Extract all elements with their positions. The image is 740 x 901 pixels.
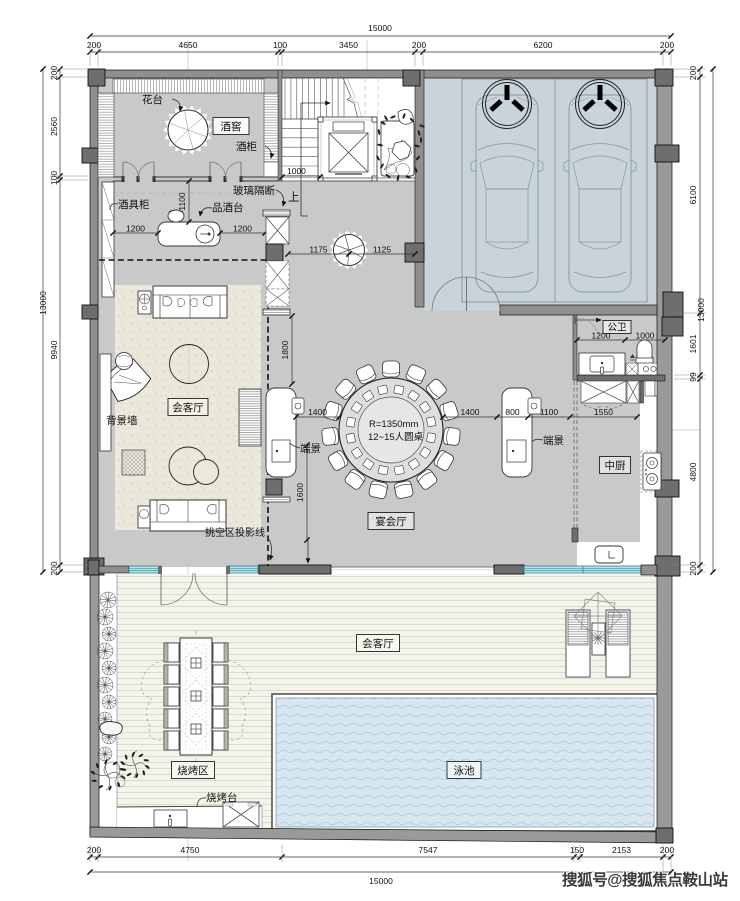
svg-text:200: 200 bbox=[660, 40, 674, 50]
svg-text:15000: 15000 bbox=[369, 876, 393, 886]
svg-text:端景: 端景 bbox=[543, 434, 564, 447]
svg-text:100: 100 bbox=[49, 171, 59, 185]
svg-text:9940: 9940 bbox=[49, 340, 59, 359]
svg-text:4650: 4650 bbox=[179, 40, 198, 50]
svg-text:端景: 端景 bbox=[300, 442, 321, 455]
svg-text:1600: 1600 bbox=[295, 483, 305, 502]
svg-text:800: 800 bbox=[505, 407, 519, 417]
svg-text:6200: 6200 bbox=[534, 40, 553, 50]
svg-text:搜狐号@搜狐焦点鞍山站: 搜狐号@搜狐焦点鞍山站 bbox=[562, 870, 729, 889]
svg-text:公卫: 公卫 bbox=[607, 322, 627, 333]
svg-text:200: 200 bbox=[412, 40, 426, 50]
svg-text:中厨: 中厨 bbox=[605, 459, 626, 472]
svg-text:R=1350mm: R=1350mm bbox=[369, 419, 418, 430]
svg-text:1100: 1100 bbox=[540, 407, 559, 417]
svg-text:200: 200 bbox=[49, 561, 59, 575]
svg-text:1400: 1400 bbox=[308, 407, 327, 417]
svg-text:烧烤区: 烧烤区 bbox=[177, 764, 209, 777]
svg-text:1000: 1000 bbox=[287, 166, 306, 176]
svg-text:200: 200 bbox=[688, 561, 698, 575]
svg-text:品酒台: 品酒台 bbox=[212, 201, 244, 214]
svg-text:6100: 6100 bbox=[688, 185, 698, 204]
svg-text:会客厅: 会客厅 bbox=[362, 637, 394, 650]
svg-text:酒具柜: 酒具柜 bbox=[118, 198, 150, 211]
svg-text:4800: 4800 bbox=[688, 462, 698, 481]
svg-text:99: 99 bbox=[688, 372, 698, 382]
svg-text:3450: 3450 bbox=[339, 40, 358, 50]
svg-text:1200: 1200 bbox=[233, 224, 252, 234]
svg-text:1125: 1125 bbox=[373, 245, 392, 255]
svg-text:背景墙: 背景墙 bbox=[106, 414, 138, 427]
svg-text:1100: 1100 bbox=[177, 192, 187, 211]
svg-text:宴会厅: 宴会厅 bbox=[375, 515, 407, 528]
svg-text:1000: 1000 bbox=[636, 331, 655, 341]
svg-text:上: 上 bbox=[288, 191, 300, 204]
svg-text:15000: 15000 bbox=[368, 23, 392, 33]
svg-text:1200: 1200 bbox=[126, 224, 145, 234]
svg-text:2153: 2153 bbox=[612, 845, 631, 855]
svg-text:1400: 1400 bbox=[461, 407, 480, 417]
svg-text:1175: 1175 bbox=[309, 245, 328, 255]
svg-text:会客厅: 会客厅 bbox=[172, 401, 204, 414]
svg-text:泳池: 泳池 bbox=[454, 764, 475, 777]
svg-text:挑空区投影线: 挑空区投影线 bbox=[205, 526, 265, 539]
svg-text:200: 200 bbox=[87, 845, 101, 855]
svg-text:烧烤台: 烧烤台 bbox=[206, 791, 238, 804]
svg-text:13000: 13000 bbox=[38, 291, 48, 315]
svg-text:玻璃隔断: 玻璃隔断 bbox=[233, 184, 275, 197]
svg-text:200: 200 bbox=[660, 845, 674, 855]
svg-text:200: 200 bbox=[87, 40, 101, 50]
svg-text:13000: 13000 bbox=[696, 298, 706, 322]
svg-text:200: 200 bbox=[49, 66, 59, 80]
svg-text:酒柜: 酒柜 bbox=[236, 140, 257, 153]
svg-text:花台: 花台 bbox=[142, 93, 163, 106]
svg-text:100: 100 bbox=[273, 40, 287, 50]
svg-text:1800: 1800 bbox=[280, 340, 290, 359]
svg-text:150: 150 bbox=[570, 845, 584, 855]
svg-text:200: 200 bbox=[688, 66, 698, 80]
svg-text:1601: 1601 bbox=[688, 334, 698, 353]
svg-text:12~15人圆桌: 12~15人圆桌 bbox=[368, 431, 424, 443]
svg-text:2560: 2560 bbox=[49, 117, 59, 136]
svg-text:7547: 7547 bbox=[419, 845, 438, 855]
svg-text:酒窖: 酒窖 bbox=[221, 120, 242, 133]
svg-text:4750: 4750 bbox=[181, 845, 200, 855]
